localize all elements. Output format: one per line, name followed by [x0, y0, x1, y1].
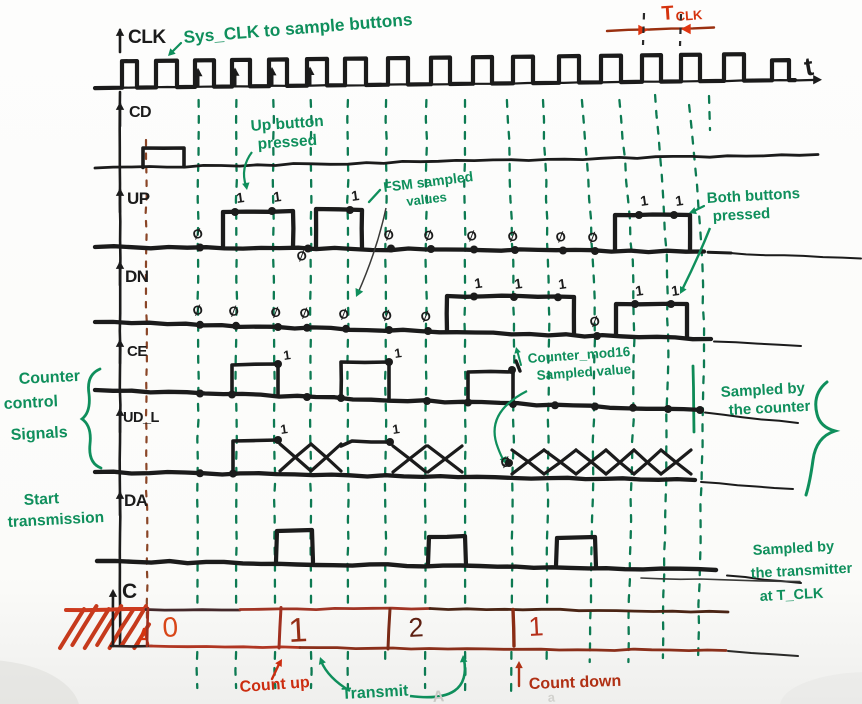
svg-text:1: 1	[528, 611, 545, 642]
svg-text:Signals: Signals	[10, 424, 68, 444]
svg-text:CD: CD	[129, 104, 151, 121]
svg-text:at T_CLK: at T_CLK	[759, 586, 824, 605]
svg-text:A: A	[432, 688, 445, 704]
svg-text:2: 2	[408, 612, 425, 643]
svg-text:CLK: CLK	[675, 7, 703, 24]
svg-text:DA: DA	[124, 491, 148, 510]
svg-text:C: C	[122, 580, 137, 603]
svg-text:Start: Start	[23, 490, 59, 509]
svg-text:0: 0	[162, 611, 179, 643]
svg-text:DN: DN	[125, 267, 149, 286]
svg-text:Count down: Count down	[529, 673, 622, 693]
svg-text:Counter: Counter	[18, 368, 80, 388]
svg-text:CE: CE	[127, 343, 147, 360]
svg-text:1: 1	[287, 611, 308, 650]
svg-text:control: control	[3, 393, 58, 413]
svg-text:T: T	[661, 2, 675, 25]
svg-text:pressed: pressed	[712, 205, 770, 225]
svg-text:CLK: CLK	[128, 27, 166, 48]
svg-text:UP: UP	[127, 189, 150, 208]
svg-text:UD_L: UD_L	[123, 410, 160, 426]
svg-text:Transmit: Transmit	[341, 682, 409, 703]
